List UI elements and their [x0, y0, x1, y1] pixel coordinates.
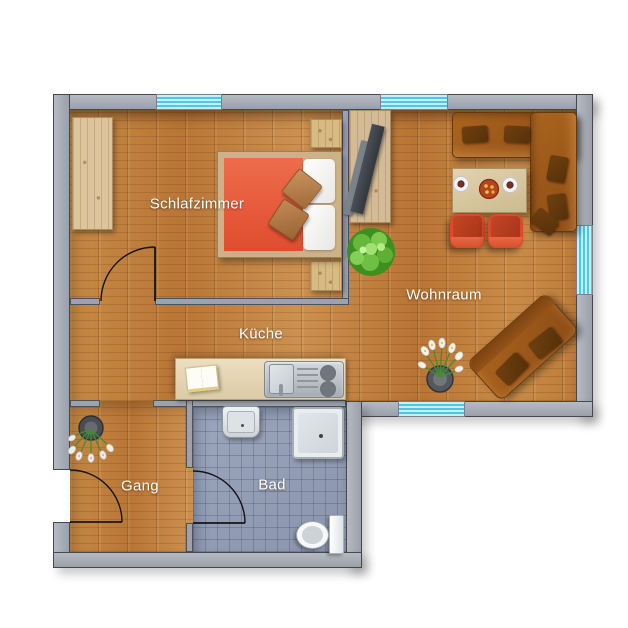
- outer-wall-bath-right: [346, 401, 362, 568]
- open-cookbook: [185, 364, 219, 392]
- drainboard-grooves: [297, 368, 318, 392]
- label-wohnraum: Wohnraum: [406, 287, 482, 304]
- bathroom-sink-drain: [241, 424, 244, 427]
- nightstand-bottom: [310, 261, 342, 291]
- label-schlafzimmer: Schlafzimmer: [150, 196, 244, 213]
- wardrobe: [72, 117, 113, 230]
- armchair-right: [488, 214, 523, 248]
- window-bedroom-top: [156, 94, 222, 110]
- label-gang: Gang: [121, 478, 159, 495]
- toilet-bowl-inner: [302, 526, 323, 544]
- toilet-bowl: [296, 521, 329, 549]
- toilet-tank: [329, 515, 344, 554]
- outer-wall-livingroom-bottom: [346, 401, 593, 417]
- armchair-left-back: [451, 237, 484, 247]
- wall-hall-bath-upper: [186, 400, 193, 468]
- outer-wall-top: [53, 94, 593, 110]
- nightstand-top: [310, 119, 342, 148]
- wall-kitchen-hall-left: [70, 400, 100, 407]
- floor-plan: Schlafzimmer Wohnraum Küche Gang Bad: [0, 0, 628, 628]
- shower-drain: [319, 434, 323, 438]
- outer-wall-bottom: [53, 552, 362, 568]
- armchair-left: [450, 214, 485, 248]
- dining-table: [452, 168, 527, 213]
- window-livingroom-bottom: [398, 401, 465, 417]
- bed-pillow-bottom: [303, 205, 335, 250]
- label-kueche: Küche: [239, 326, 283, 343]
- bathroom-sink: [222, 406, 260, 438]
- label-bad: Bad: [258, 477, 286, 494]
- armchair-left-seat: [453, 216, 482, 239]
- shower-tray: [298, 413, 338, 453]
- window-livingroom-right: [576, 225, 593, 295]
- shower: [292, 407, 344, 459]
- sink-faucet: [279, 384, 283, 396]
- sofa-cushion-1: [461, 125, 488, 144]
- bathroom-sink-basin: [227, 411, 255, 433]
- wall-bedroom-kitchen-left: [70, 298, 100, 305]
- stove-burner-rear: [320, 365, 336, 381]
- stove-burner-front: [320, 381, 336, 397]
- wall-hall-bath-lower: [186, 523, 193, 552]
- window-livingroom-top: [380, 94, 448, 110]
- wall-bedroom-kitchen-right: [155, 298, 349, 305]
- armchair-right-seat: [491, 216, 520, 239]
- sofa-cushion-2: [504, 125, 531, 143]
- armchair-right-back: [489, 237, 522, 247]
- outer-wall-left-upper: [53, 94, 70, 470]
